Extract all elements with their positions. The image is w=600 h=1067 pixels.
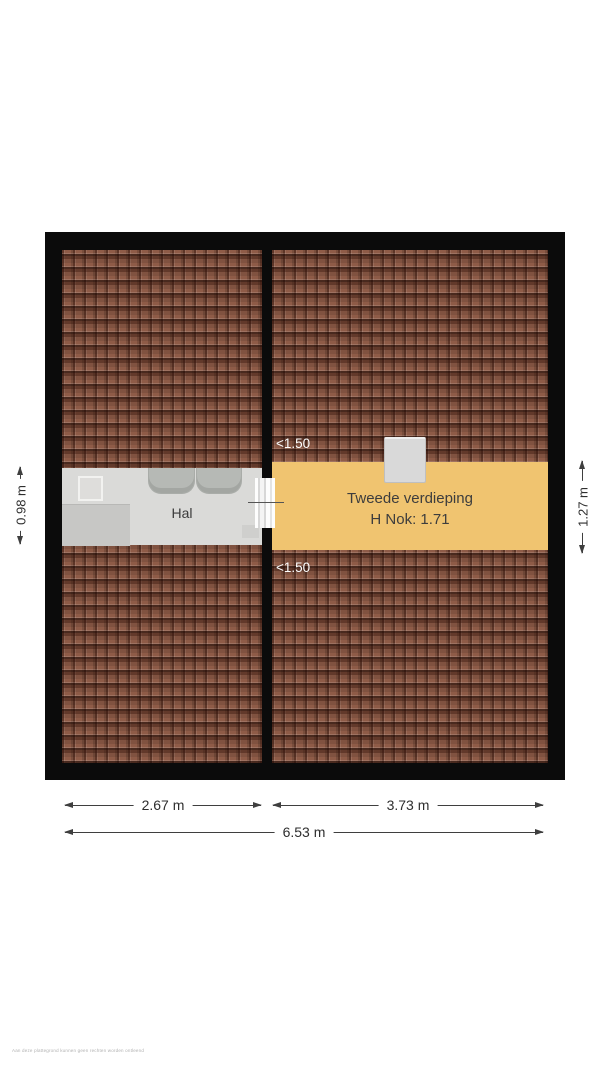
clearance-label-bottom: <1.50 — [276, 560, 310, 575]
fine-print: Aan deze plattegrond kunnen geen rechten… — [12, 1048, 144, 1053]
floorplan-frame: Hal Tweede verdieping H Nok: 1.71 <1.50 … — [45, 232, 565, 780]
room-hal: Hal — [62, 468, 262, 545]
cabinet — [78, 476, 103, 501]
clearance-label-top: <1.50 — [276, 436, 310, 451]
dimension-label-right: 1.27 m — [575, 481, 592, 533]
stair-area — [62, 504, 130, 546]
dimension-line-bottom-right: 3.73 m — [273, 805, 543, 806]
floorplan-canvas: Hal Tweede verdieping H Nok: 1.71 <1.50 … — [0, 0, 600, 1067]
skylight — [384, 437, 426, 483]
dimension-label-bottom-left: 2.67 m — [134, 797, 193, 813]
room-label-hal: Hal — [152, 505, 212, 521]
dimension-label-bottom-total: 6.53 m — [275, 824, 334, 840]
door — [255, 478, 275, 528]
roof-section-right: Tweede verdieping H Nok: 1.71 — [272, 250, 548, 763]
floorplan-interior: Hal Tweede verdieping H Nok: 1.71 <1.50 … — [62, 250, 548, 763]
dimension-label-left: 0.98 m — [13, 479, 30, 531]
door-line — [248, 502, 284, 503]
room-label-attic: Tweede verdieping H Nok: 1.71 — [272, 488, 548, 530]
roof-section-left: Hal — [62, 250, 262, 763]
dimension-line-bottom-total: 6.53 m — [65, 832, 543, 833]
attic-name: Tweede verdieping — [272, 488, 548, 509]
dimension-label-bottom-right: 3.73 m — [379, 797, 438, 813]
dimension-line-bottom-left: 2.67 m — [65, 805, 261, 806]
sofa-cushion — [148, 468, 195, 494]
sofa-cushion — [196, 468, 242, 494]
attic-height-note: H Nok: 1.71 — [272, 509, 548, 530]
